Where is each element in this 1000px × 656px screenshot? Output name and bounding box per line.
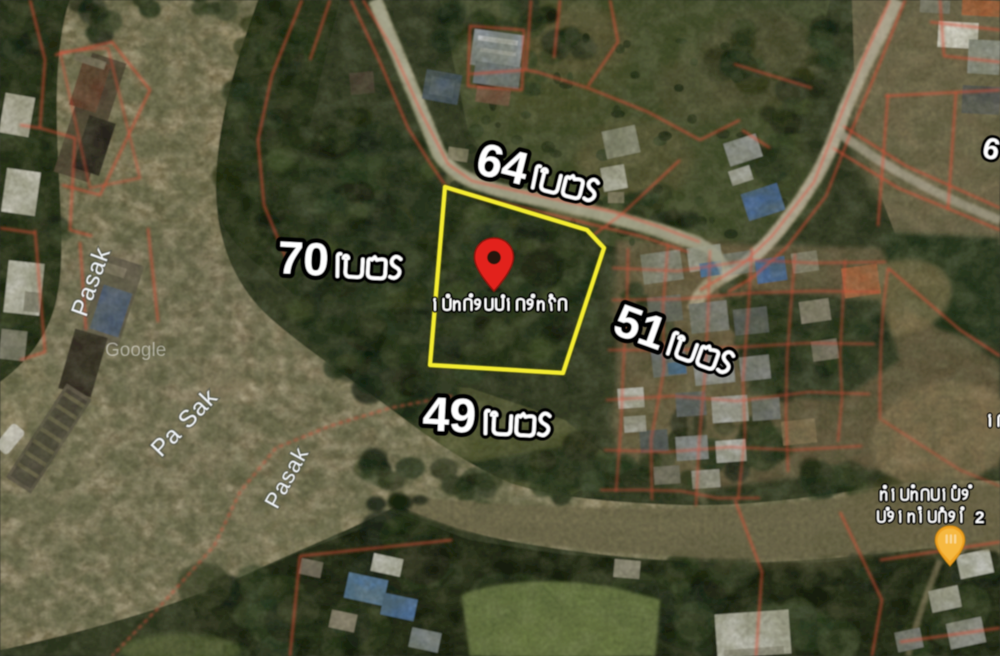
svg-text:2: 2 (975, 508, 984, 527)
svg-text:70: 70 (276, 231, 330, 286)
svg-text:Google: Google (105, 340, 166, 361)
svg-text:49: 49 (421, 388, 477, 444)
